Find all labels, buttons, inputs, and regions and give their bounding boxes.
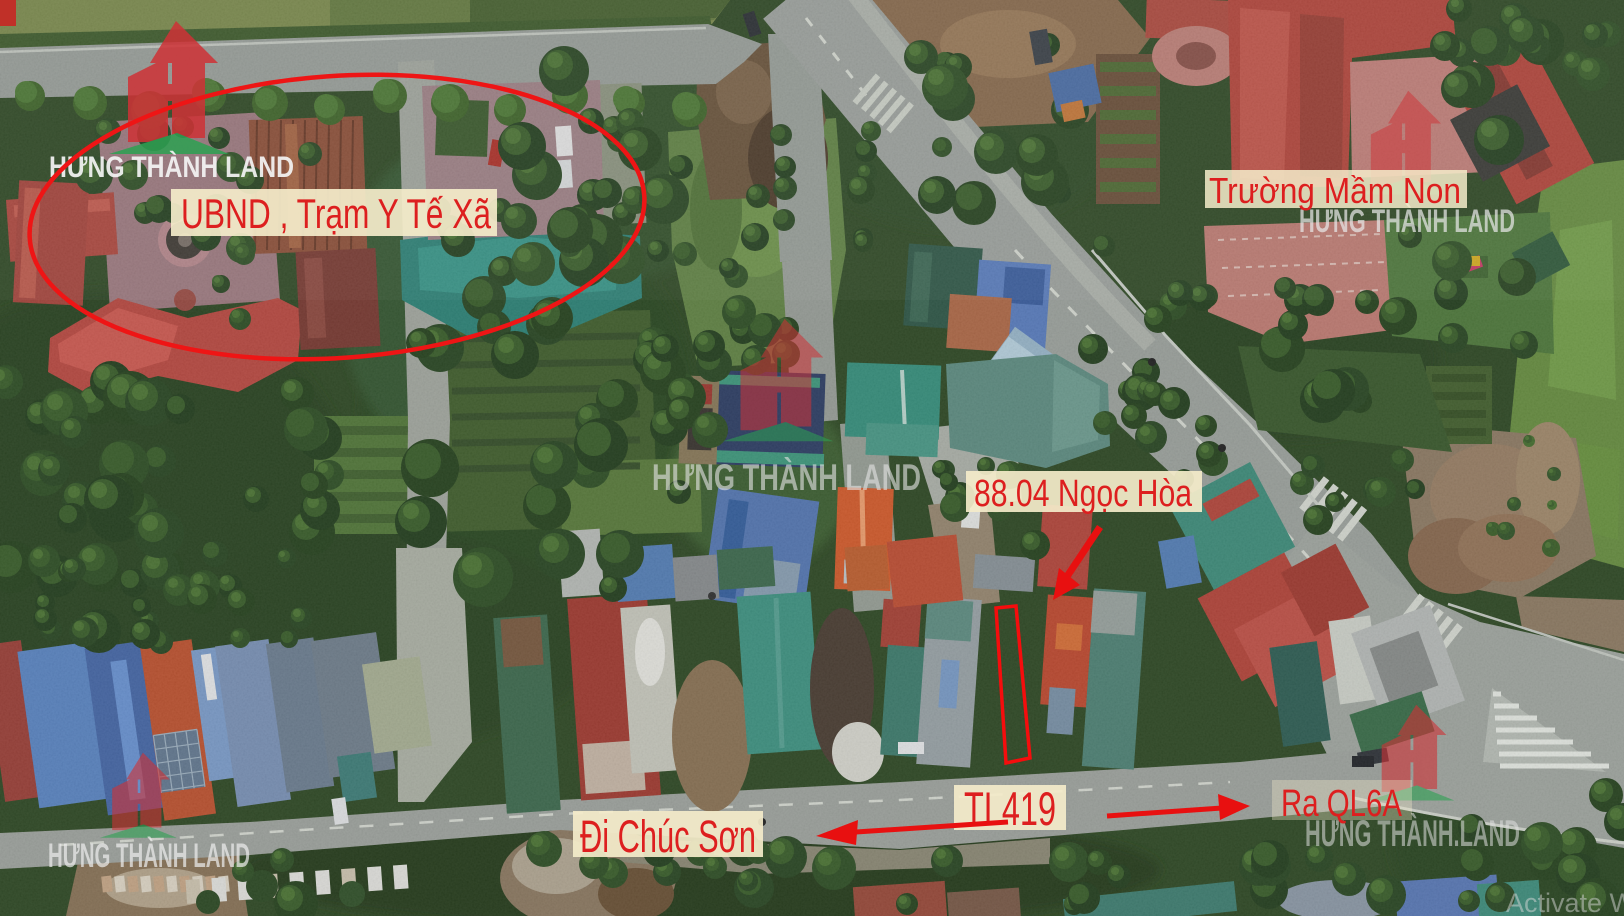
svg-text:Trường Mầm Non: Trường Mầm Non — [1209, 170, 1461, 211]
svg-text:HƯNG THÀNH LAND: HƯNG THÀNH LAND — [49, 150, 294, 184]
svg-text:HƯNG THÀNH LAND: HƯNG THÀNH LAND — [48, 837, 250, 875]
svg-text:88.04 Ngọc Hòa: 88.04 Ngọc Hòa — [974, 473, 1193, 515]
svg-text:UBND , Trạm Y Tế Xã: UBND , Trạm Y Tế Xã — [181, 190, 491, 237]
svg-text:Ra QL6A: Ra QL6A — [1281, 783, 1403, 825]
svg-text:TL419: TL419 — [964, 782, 1056, 835]
svg-text:Activate Win: Activate Win — [1506, 888, 1624, 916]
svg-text:Đi Chúc Sơn: Đi Chúc Sơn — [580, 811, 756, 862]
svg-text:HƯNG THÀNH LAND: HƯNG THÀNH LAND — [652, 457, 921, 498]
